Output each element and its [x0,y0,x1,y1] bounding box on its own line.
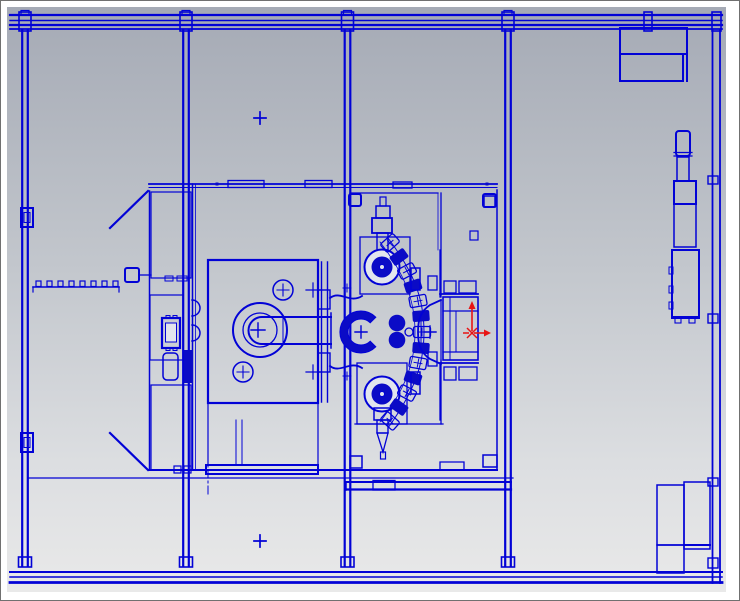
cad-viewport[interactable] [0,0,740,601]
gripper-roller[interactable] [389,332,406,349]
gripper-roller[interactable] [389,315,406,332]
viewport-background [7,7,726,592]
